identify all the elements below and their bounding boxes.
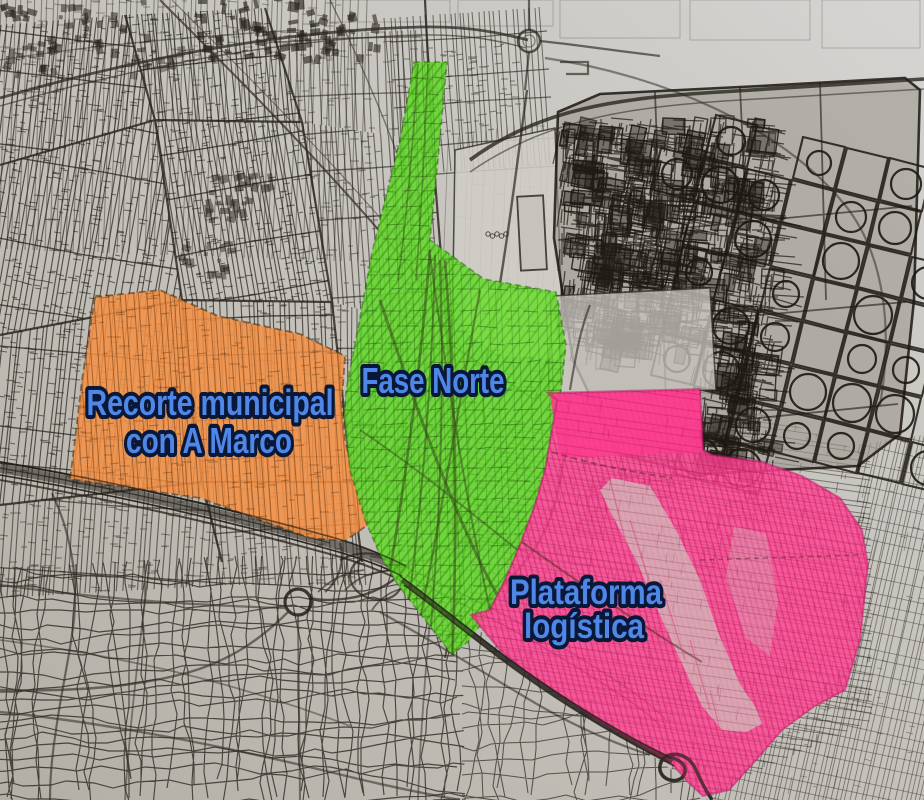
svg-text:Recorte municipal: Recorte municipal [87, 382, 334, 423]
svg-text:logística: logística [524, 607, 644, 646]
svg-text:con A Marco: con A Marco [126, 420, 292, 461]
svg-text:Fase Norte: Fase Norte [362, 360, 505, 401]
